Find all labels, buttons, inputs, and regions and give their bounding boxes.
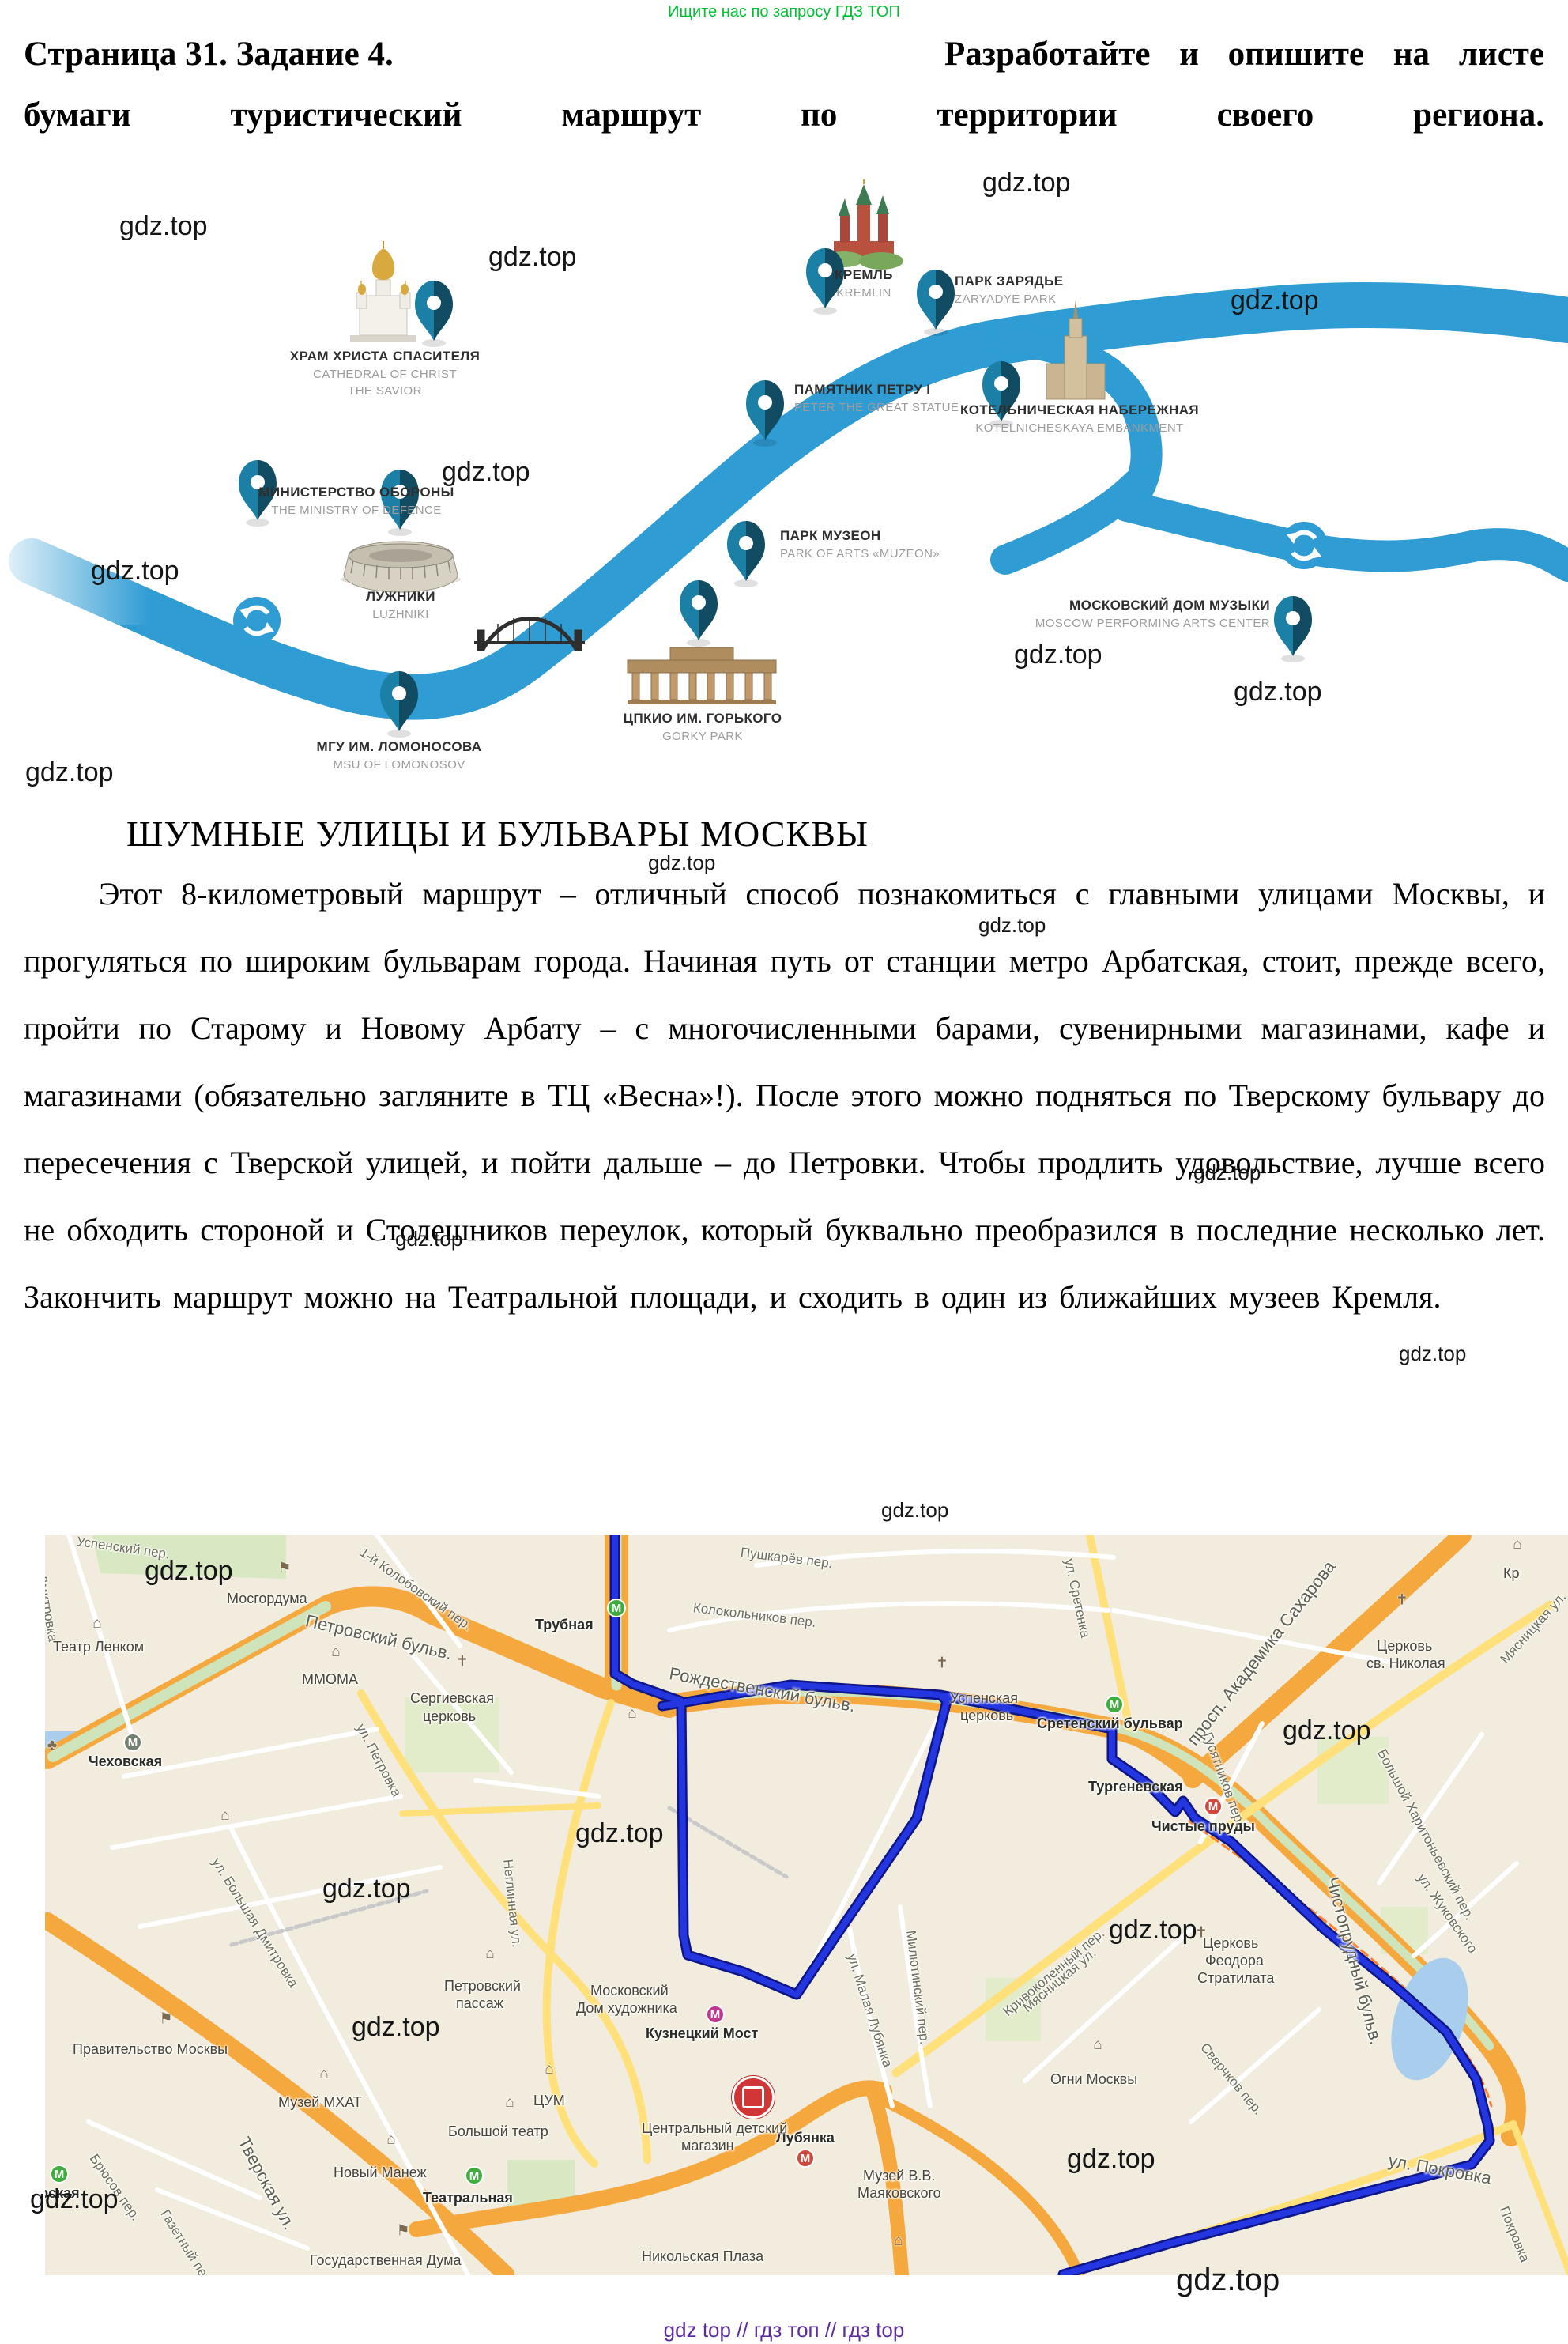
gdz-watermark: gdz.top — [1399, 1342, 1466, 1366]
poi-icon: ⌂ — [894, 2233, 903, 2250]
map-label: св. Николая — [1366, 1655, 1445, 1672]
map-label: Центральный детский — [642, 2120, 787, 2137]
label-cathedral: ХРАМ ХРИСТА СПАСИТЕЛЯ CATHEDRAL OF CHRIS… — [290, 349, 481, 398]
route-map: ДмитровкаУспенский пер.Театр ЛенкомМосго… — [45, 1535, 1568, 2275]
pin-gorky — [680, 580, 718, 647]
map-label: Никольская Плаза — [642, 2248, 763, 2265]
poi-icon: ✝ — [936, 1655, 948, 1673]
map-label: Театр Ленком — [53, 1639, 144, 1655]
gdz-watermark: gdz.top — [881, 1498, 948, 1523]
pin-cathedral — [415, 281, 453, 347]
gdz-watermark: gdz.top — [145, 1556, 233, 1587]
poi-icon: ⌂ — [92, 1615, 101, 1632]
gdz-watermark: gdz.top — [322, 1874, 411, 1904]
map-label: Большой театр — [448, 2123, 548, 2140]
pin-msu — [380, 671, 418, 738]
gdz-watermark: gdz.top — [982, 168, 1071, 198]
poi-icon: ♣ — [47, 1737, 57, 1754]
map-label: Феодора — [1205, 1953, 1264, 1969]
river-infographic — [0, 0, 1568, 870]
map-label: Дом художника — [576, 2000, 677, 2017]
map-label: Сретенский бульвар — [1037, 1716, 1183, 1732]
map-label: Церковь — [1203, 1935, 1258, 1952]
label-luzhniki: ЛУЖНИКИ LUZHNIKI — [366, 589, 435, 621]
metro-icon: М — [1204, 1797, 1223, 1816]
metro-icon: М — [607, 1599, 626, 1617]
label-music-house: МОСКОВСКИЙ ДОМ МУЗЫКИ MOSCOW PERFORMING … — [1035, 598, 1270, 630]
map-label: Трубная — [535, 1617, 594, 1633]
gdz-watermark: gdz.top — [352, 2012, 440, 2043]
gdz-watermark: gdz.top — [395, 1227, 462, 1251]
poi-icon: ⚑ — [159, 2010, 172, 2029]
poi-icon: ⌂ — [485, 1946, 494, 1963]
label-msu: МГУ ИМ. ЛОМОНОСОВА MSU OF LOMONOSOV — [317, 739, 482, 772]
page: Ищите нас по запросу ГДЗ ТОП Страница 31… — [0, 0, 1568, 2344]
poi-icon: ✝ — [1396, 1591, 1408, 1610]
map-label: Маяковского — [857, 2185, 941, 2202]
map-label: Церковь — [1377, 1638, 1432, 1655]
label-zaryadye: ПАРК ЗАРЯДЬЕ ZARYADYE PARK — [955, 274, 1063, 306]
map-label: Кр — [1503, 1565, 1520, 1582]
label-ministry: МИНИСТЕРСТВО ОБОРОНЫ THE MINISTRY OF DEF… — [258, 485, 454, 517]
map-label: Государственная Дума — [310, 2252, 462, 2269]
map-label: церковь — [960, 1708, 1013, 1724]
roundabout-icon — [1280, 522, 1328, 569]
map-label: церковь — [423, 1708, 476, 1725]
label-kremlin: КРЕМЛЬ KREMLIN — [835, 267, 893, 300]
poi-icon: ⌂ — [1513, 1536, 1521, 1553]
poi-icon: ⚑ — [277, 1560, 291, 1578]
metro-icon: М — [123, 1733, 142, 1752]
map-label: Театральная — [423, 2190, 513, 2206]
cathedral-illustration — [350, 241, 416, 342]
map-label: Огни Москвы — [1050, 2071, 1137, 2088]
map-label: ЦУМ — [533, 2093, 565, 2109]
gdz-watermark: gdz.top — [1193, 1161, 1261, 1185]
gdz-watermark: gdz.top — [1176, 2263, 1280, 2298]
pin-music-house — [1274, 596, 1312, 662]
map-label: Кузнецкий Мост — [646, 2025, 758, 2042]
metro-icon: М — [50, 2165, 69, 2184]
gdz-watermark: gdz.top — [119, 211, 208, 242]
poi-icon: ⌂ — [220, 1807, 229, 1825]
gdz-watermark: gdz.top — [1014, 640, 1102, 670]
map-label: Правительство Москвы — [73, 2041, 228, 2058]
map-label: Музей МХАТ — [278, 2094, 362, 2111]
label-muzeon: ПАРК МУЗЕОН PARK OF ARTS «MUZEON» — [780, 528, 940, 561]
poi-icon: ⌂ — [628, 1705, 636, 1723]
metro-icon: М — [1105, 1695, 1124, 1714]
metro-icon: М — [465, 2166, 484, 2185]
poi-icon: ⌂ — [386, 2131, 395, 2149]
detsky-mir-logo — [732, 2076, 775, 2119]
map-label: пассаж — [456, 1995, 503, 2012]
gdz-watermark: gdz.top — [1234, 677, 1322, 708]
gdz-watermark: gdz.top — [1231, 285, 1319, 316]
gdz-watermark: gdz.top — [648, 851, 715, 875]
metro-icon: М — [706, 2005, 725, 2024]
map-label: Музей В.В. — [863, 2168, 935, 2184]
map-label: Московский — [590, 1983, 669, 1999]
metro-icon: М — [796, 2149, 815, 2168]
gdz-watermark: gdz.top — [25, 757, 114, 788]
label-gorky: ЦПКИО ИМ. ГОРЬКОГО GORKY PARK — [624, 711, 782, 743]
poi-icon: ⌂ — [331, 1644, 340, 1661]
poi-icon: ✝ — [456, 1653, 469, 1671]
footer-text: gdz top // гдз топ // гдз top — [0, 2318, 1568, 2342]
map-label: ММОМА — [302, 1671, 358, 1688]
map-label: Сергиевская — [410, 1690, 494, 1707]
map-label: Успенская — [950, 1690, 1018, 1707]
pin-muzeon — [727, 521, 765, 587]
poi-icon: ⌂ — [1093, 2036, 1102, 2054]
map-label: Чеховская — [89, 1753, 162, 1770]
map-label: Тургеневская — [1088, 1779, 1183, 1795]
article-title: ШУМНЫЕ УЛИЦЫ И БУЛЬВАРЫ МОСКВЫ — [126, 813, 869, 855]
luzhniki-illustration — [341, 542, 461, 592]
map-label: Новый Манеж — [334, 2165, 427, 2181]
pin-zaryadye — [917, 270, 955, 336]
article-paragraph: Этот 8-километровый маршрут – отличный с… — [24, 860, 1545, 1331]
gdz-watermark: gdz.top — [978, 913, 1046, 938]
gorky-gate-illustration — [628, 647, 776, 704]
map-label: магазин — [681, 2138, 734, 2154]
poi-icon: ⚑ — [396, 2222, 409, 2240]
map-label: Мосгордума — [227, 1591, 307, 1607]
map-label: Петровский — [444, 1978, 521, 1995]
label-peter: ПАМЯТНИК ПЕТРУ I PETER THE GREAT STATUE — [794, 382, 959, 414]
gdz-watermark: gdz.top — [30, 2184, 119, 2215]
gdz-watermark: gdz.top — [1109, 1915, 1197, 1946]
gdz-watermark: gdz.top — [575, 1818, 664, 1849]
poi-icon: ⌂ — [319, 2066, 328, 2083]
roundabout-icon — [233, 597, 281, 644]
poi-icon: ⌂ — [545, 2061, 553, 2078]
gdz-watermark: gdz.top — [1067, 2144, 1155, 2175]
gdz-watermark: gdz.top — [91, 556, 179, 587]
gdz-watermark: gdz.top — [442, 457, 530, 488]
poi-icon: ⌂ — [505, 2094, 514, 2112]
map-label: Стратилата — [1197, 1970, 1274, 1987]
gdz-watermark: gdz.top — [488, 242, 577, 273]
label-kotelnicheskaya: КОТЕЛЬНИЧЕСКАЯ НАБЕРЕЖНАЯ KOTELNICHESKAY… — [960, 402, 1199, 435]
gdz-watermark: gdz.top — [1283, 1716, 1371, 1746]
